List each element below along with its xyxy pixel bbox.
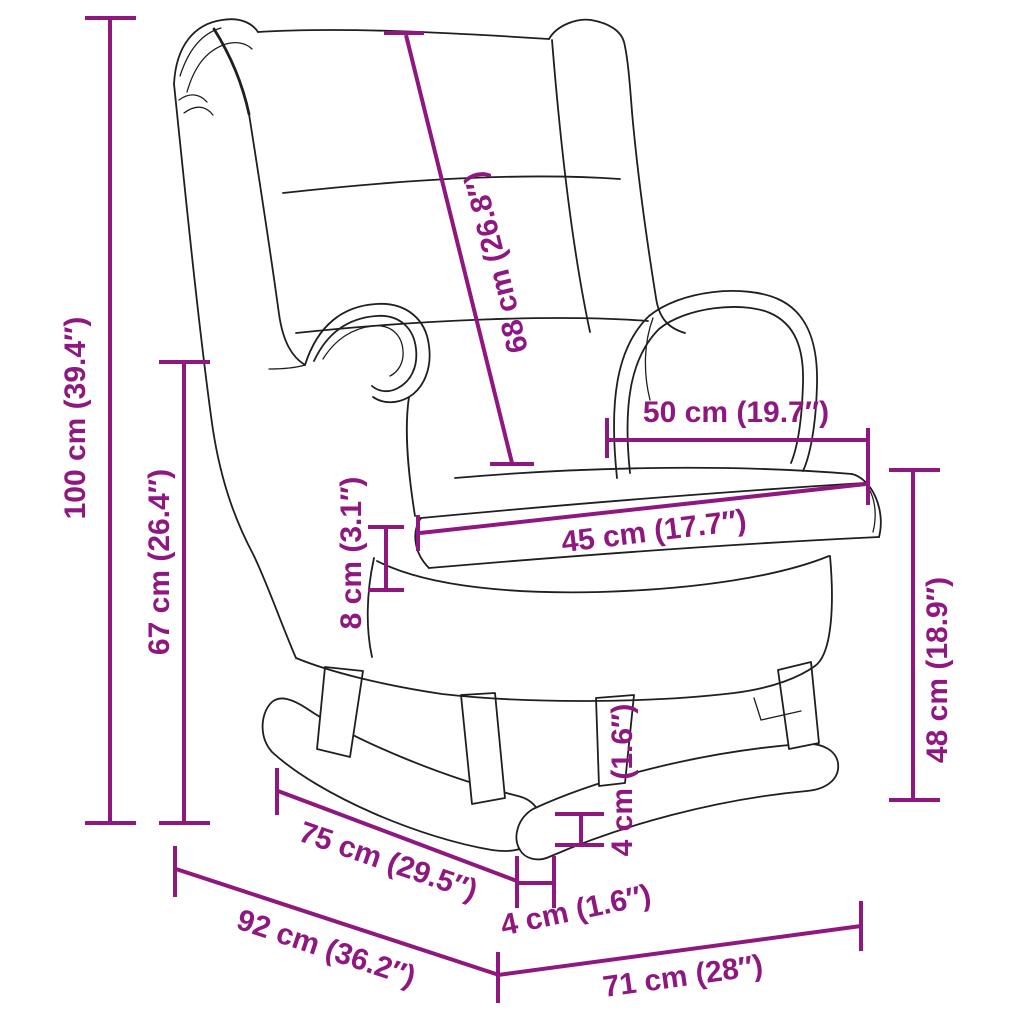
- dimension-diagram: 100 cm (39.4″) 67 cm (26.4″) 68 cm (26.8…: [0, 0, 1024, 1024]
- arm-right-inner: [627, 307, 803, 473]
- left-wing-fold: [214, 29, 249, 114]
- dim-line-100cm: [85, 18, 136, 823]
- base-left-edge: [368, 558, 374, 657]
- left-side-outline: [174, 84, 296, 658]
- back-seam-upper: [283, 176, 620, 193]
- dim-label-67cm: 67 cm (26.4″): [145, 469, 175, 655]
- right-wing-seam: [552, 40, 590, 332]
- arm-left-wing-join: [269, 365, 305, 369]
- left-roll-contour-1: [180, 28, 221, 76]
- arm-right-curl: [645, 318, 653, 400]
- dim-label-8cm: 8 cm (3.1″): [337, 477, 367, 630]
- left-roll-pleat-1: [179, 95, 207, 102]
- left-wing-inner-edge: [249, 114, 305, 365]
- seat-cushion-back-edge: [455, 468, 852, 478]
- dim-label-100cm: 100 cm (39.4″): [61, 317, 91, 520]
- left-roll-pleat-2: [184, 107, 213, 115]
- arm-left-outer: [305, 304, 430, 402]
- back-seam-middle: [296, 318, 648, 333]
- back-top-left-roll: [174, 19, 258, 84]
- arm-left-front-edge: [407, 397, 415, 516]
- back-top-right-roll: [549, 20, 632, 112]
- rocker-right: [516, 744, 838, 860]
- seat-cushion-front-top: [421, 483, 864, 518]
- arm-right-outer: [614, 291, 817, 478]
- dim-label-4cm-vertical: 4 cm (1.6″): [608, 704, 638, 857]
- base-top-edge: [377, 556, 829, 592]
- dim-label-48cm: 48 cm (18.9″): [923, 577, 953, 763]
- dim-label-50cm: 50 cm (19.7″): [643, 398, 829, 428]
